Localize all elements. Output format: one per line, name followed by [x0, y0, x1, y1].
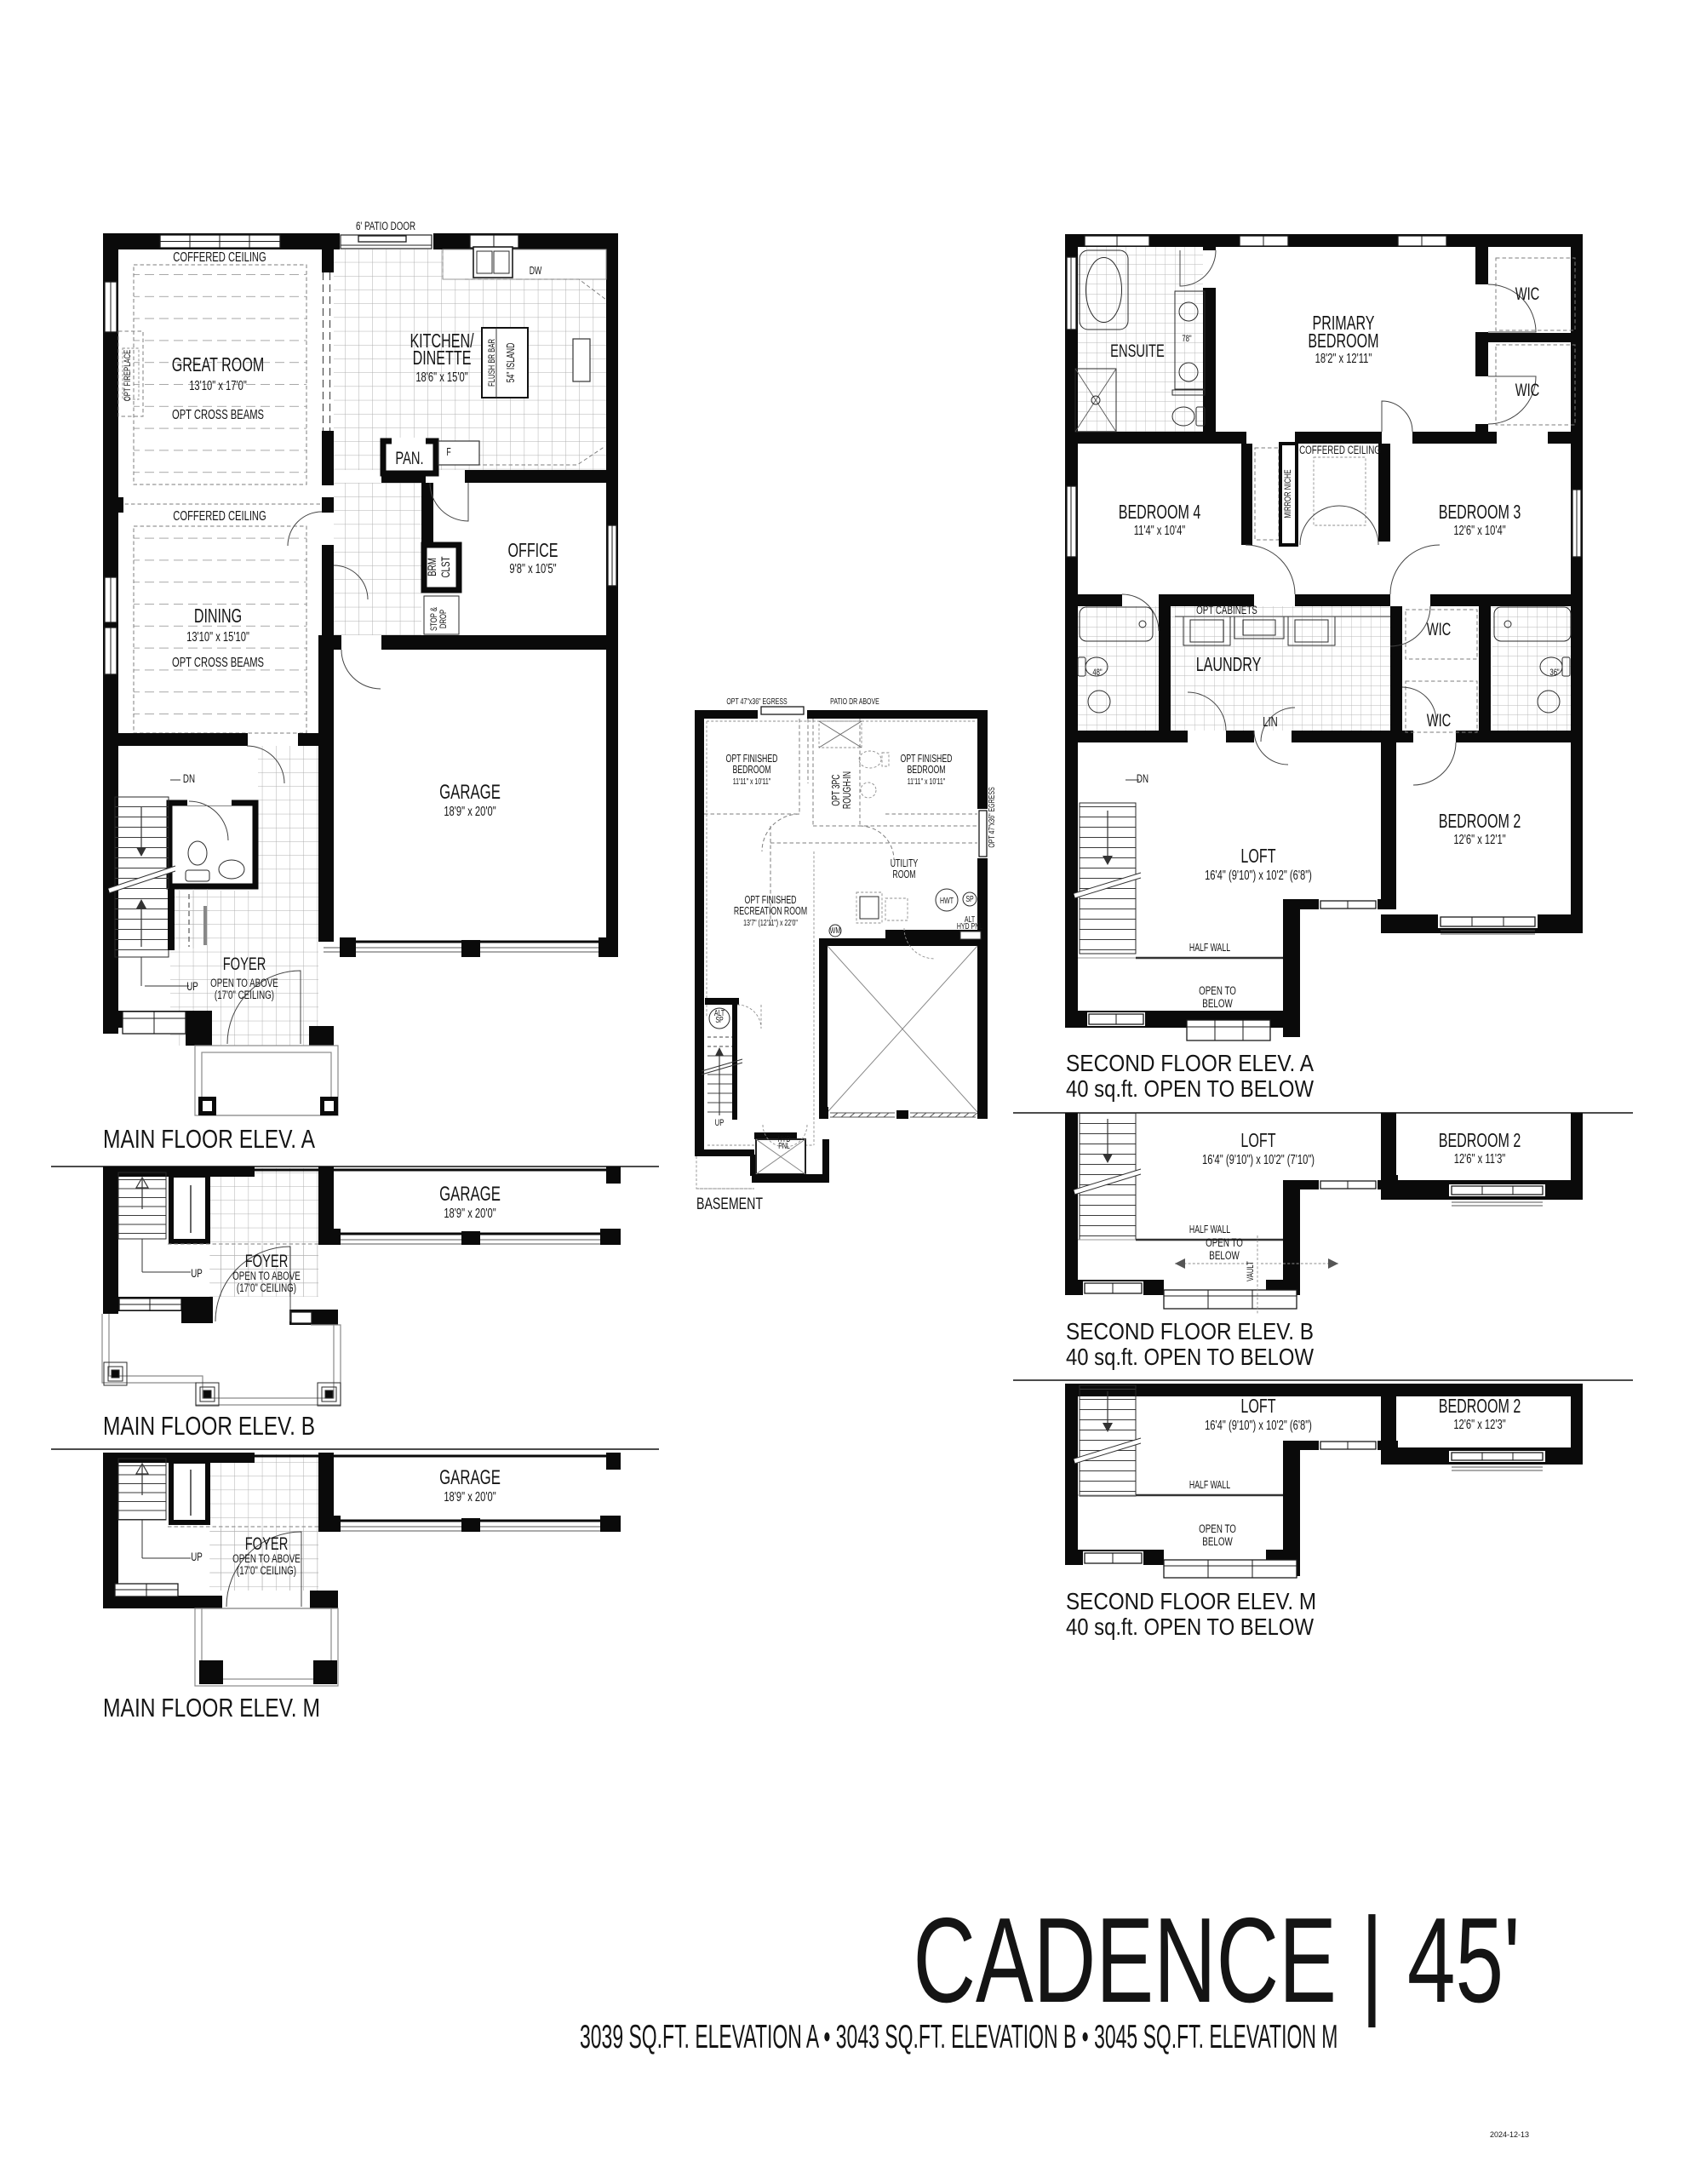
svg-text:54" ISLAND: 54" ISLAND: [506, 342, 518, 382]
svg-text:18'9" x 20'0": 18'9" x 20'0": [444, 1205, 495, 1221]
svg-text:MIRROR NICHE: MIRROR NICHE: [1283, 469, 1294, 518]
svg-text:BEDROOM 2: BEDROOM 2: [1439, 811, 1521, 832]
svg-text:OPT FINISHED: OPT FINISHED: [901, 754, 953, 765]
svg-text:HALF WALL: HALF WALL: [1189, 1224, 1230, 1236]
svg-text:36": 36": [1549, 668, 1559, 679]
svg-text:SECOND FLOOR ELEV. B: SECOND FLOOR ELEV. B: [1066, 1318, 1314, 1344]
svg-text:13'7" (12'11") x 22'0": 13'7" (12'11") x 22'0": [743, 918, 798, 928]
svg-text:GARAGE: GARAGE: [439, 1466, 501, 1489]
svg-text:BELOW: BELOW: [1202, 1534, 1233, 1548]
svg-text:WIC: WIC: [1427, 619, 1452, 639]
svg-text:PATIO DR ABOVE: PATIO DR ABOVE: [830, 696, 879, 707]
svg-text:LOFT: LOFT: [1240, 1396, 1275, 1417]
svg-text:BELOW: BELOW: [1209, 1248, 1240, 1262]
svg-text:16'4" (9'10") x 10'2" (7'10"): 16'4" (9'10") x 10'2" (7'10"): [1202, 1151, 1315, 1167]
svg-text:OPT FINISHED: OPT FINISHED: [745, 895, 797, 907]
svg-text:OPT 3PC: OPT 3PC: [831, 774, 843, 805]
svg-text:48": 48": [1092, 668, 1102, 679]
svg-text:13'10" x 17'0": 13'10" x 17'0": [189, 377, 247, 393]
svg-text:BEDROOM 2: BEDROOM 2: [1439, 1130, 1521, 1151]
svg-text:FOYER: FOYER: [245, 1251, 289, 1270]
svg-text:18'9" x 20'0": 18'9" x 20'0": [444, 803, 495, 819]
svg-text:OPEN TO: OPEN TO: [1199, 983, 1236, 997]
svg-text:MAIN FLOOR ELEV. M: MAIN FLOOR ELEV. M: [103, 1693, 320, 1723]
svg-text:GARAGE: GARAGE: [439, 1183, 501, 1206]
svg-text:CLST: CLST: [438, 556, 452, 578]
svg-text:MAIN FLOOR ELEV. B: MAIN FLOOR ELEV. B: [103, 1411, 315, 1441]
svg-text:OPT FIREPLACE: OPT FIREPLACE: [123, 350, 134, 402]
svg-text:16'4" (9'10") x 10'2" (6'8"): 16'4" (9'10") x 10'2" (6'8"): [1205, 867, 1312, 883]
svg-text:GARAGE: GARAGE: [439, 781, 501, 804]
svg-text:UTILITY: UTILITY: [891, 858, 919, 870]
svg-text:SP: SP: [965, 894, 974, 904]
svg-text:11'4" x 10'4": 11'4" x 10'4": [1134, 522, 1186, 538]
svg-text:OPT FINISHED: OPT FINISHED: [726, 754, 778, 765]
svg-text:LAUNDRY: LAUNDRY: [1196, 654, 1262, 675]
svg-text:OFFICE: OFFICE: [507, 540, 558, 561]
svg-text:UP: UP: [715, 1118, 725, 1129]
svg-text:DW: DW: [530, 266, 542, 278]
svg-text:OPT CROSS BEAMS: OPT CROSS BEAMS: [172, 654, 264, 670]
svg-text:SECOND FLOOR ELEV. A: SECOND FLOOR ELEV. A: [1066, 1050, 1314, 1076]
svg-text:BEDROOM: BEDROOM: [907, 765, 945, 777]
svg-text:OPT CABINETS: OPT CABINETS: [1196, 603, 1257, 616]
svg-text:FOYER: FOYER: [223, 954, 266, 973]
svg-text:(17'0" CEILING): (17'0" CEILING): [237, 1563, 296, 1577]
svg-text:UP: UP: [186, 979, 198, 993]
svg-text:COFFERED CEILING: COFFERED CEILING: [1299, 443, 1381, 456]
svg-text:12'6" x 12'1": 12'6" x 12'1": [1453, 831, 1505, 847]
svg-text:BEDROOM 4: BEDROOM 4: [1119, 502, 1201, 523]
svg-text:FOYER: FOYER: [245, 1533, 289, 1553]
svg-text:GREAT ROOM: GREAT ROOM: [172, 354, 264, 375]
svg-text:16'4" (9'10") x 10'2" (6'8"): 16'4" (9'10") x 10'2" (6'8"): [1205, 1417, 1312, 1433]
svg-text:HWT: HWT: [940, 896, 954, 906]
svg-text:F: F: [446, 447, 451, 459]
svg-text:DN: DN: [183, 771, 195, 785]
svg-text:VAULT: VAULT: [1246, 1261, 1257, 1281]
svg-text:OPT CROSS BEAMS: OPT CROSS BEAMS: [172, 406, 264, 422]
svg-text:11'11" x 10'11": 11'11" x 10'11": [733, 777, 771, 787]
svg-text:DROP: DROP: [438, 610, 450, 628]
svg-text:LOFT: LOFT: [1240, 846, 1275, 867]
svg-text:18'2" x 12'11": 18'2" x 12'11": [1315, 350, 1372, 366]
svg-text:LOFT: LOFT: [1240, 1130, 1275, 1151]
svg-text:BEDROOM 3: BEDROOM 3: [1439, 502, 1521, 523]
svg-text:CADENCE | 45': CADENCE | 45': [914, 1893, 1521, 2028]
svg-text:9'8" x 10'5": 9'8" x 10'5": [509, 560, 556, 576]
svg-text:6' PATIO DOOR: 6' PATIO DOOR: [356, 219, 415, 232]
svg-text:DINING: DINING: [194, 605, 242, 627]
svg-text:12'6" x 10'4": 12'6" x 10'4": [1453, 522, 1505, 538]
svg-text:WM: WM: [830, 926, 840, 936]
svg-text:13'10" x 15'10": 13'10" x 15'10": [186, 628, 249, 645]
svg-text:WIC: WIC: [1427, 710, 1452, 730]
svg-text:FLUSH BR BAR: FLUSH BR BAR: [487, 339, 498, 387]
svg-text:18'6" x 15'0": 18'6" x 15'0": [415, 369, 467, 385]
svg-text:OPEN TO: OPEN TO: [1199, 1522, 1236, 1535]
svg-text:2024-12-13: 2024-12-13: [1490, 2130, 1529, 2140]
svg-text:MAIN FLOOR ELEV. A: MAIN FLOOR ELEV. A: [103, 1124, 315, 1154]
svg-text:PNL: PNL: [778, 1141, 790, 1151]
svg-text:40 sq.ft. OPEN TO BELOW: 40 sq.ft. OPEN TO BELOW: [1066, 1614, 1314, 1640]
svg-text:ENSUITE: ENSUITE: [1110, 341, 1165, 360]
svg-text:WIC: WIC: [1515, 380, 1540, 399]
svg-text:BEDROOM 2: BEDROOM 2: [1439, 1396, 1521, 1417]
svg-text:OPT 47"x36" EGRESS: OPT 47"x36" EGRESS: [726, 696, 788, 707]
svg-text:BEDROOM: BEDROOM: [732, 765, 770, 777]
svg-text:OPT 47"x36" EGRESS: OPT 47"x36" EGRESS: [987, 787, 997, 848]
svg-text:HALF WALL: HALF WALL: [1189, 943, 1230, 954]
svg-text:BASEMENT: BASEMENT: [696, 1195, 763, 1213]
svg-text:18'9" x 20'0": 18'9" x 20'0": [444, 1488, 495, 1505]
svg-text:12'6" x 11'3": 12'6" x 11'3": [1454, 1150, 1506, 1167]
svg-text:SECOND FLOOR ELEV. M: SECOND FLOOR ELEV. M: [1066, 1588, 1316, 1614]
svg-text:40 sq.ft. OPEN TO BELOW: 40 sq.ft. OPEN TO BELOW: [1066, 1075, 1314, 1102]
svg-text:3039 SQ.FT. ELEVATION A • 3043: 3039 SQ.FT. ELEVATION A • 3043 SQ.FT. EL…: [580, 2018, 1337, 2055]
svg-text:OPEN TO: OPEN TO: [1206, 1235, 1243, 1249]
svg-text:COFFERED CEILING: COFFERED CEILING: [173, 249, 266, 265]
svg-text:BRM: BRM: [425, 558, 438, 576]
svg-text:ROOM: ROOM: [892, 869, 915, 881]
svg-text:UP: UP: [191, 1550, 203, 1563]
svg-text:HYD PNL: HYD PNL: [957, 921, 982, 931]
svg-text:WIC: WIC: [1515, 284, 1540, 303]
svg-text:11'11" x 10'11": 11'11" x 10'11": [908, 777, 946, 787]
svg-text:78": 78": [1182, 334, 1191, 345]
svg-text:ROUGH-IN: ROUGH-IN: [842, 771, 854, 809]
svg-text:12'6" x 12'3": 12'6" x 12'3": [1453, 1416, 1505, 1432]
svg-text:DN: DN: [1137, 771, 1148, 785]
svg-text:UP: UP: [191, 1266, 203, 1280]
svg-text:PAN.: PAN.: [395, 448, 423, 467]
svg-text:LIN: LIN: [1263, 714, 1277, 730]
svg-text:HALF WALL: HALF WALL: [1189, 1480, 1230, 1492]
svg-text:COFFERED CEILING: COFFERED CEILING: [173, 507, 266, 524]
svg-text:(17'0" CEILING): (17'0" CEILING): [237, 1281, 296, 1294]
svg-text:40 sq.ft. OPEN TO BELOW: 40 sq.ft. OPEN TO BELOW: [1066, 1344, 1314, 1370]
svg-text:RECREATION ROOM: RECREATION ROOM: [734, 906, 807, 918]
svg-text:BELOW: BELOW: [1202, 996, 1233, 1010]
svg-text:SP: SP: [715, 1015, 724, 1025]
svg-text:DINETTE: DINETTE: [413, 347, 472, 369]
svg-text:(17'0" CEILING): (17'0" CEILING): [215, 988, 274, 1001]
